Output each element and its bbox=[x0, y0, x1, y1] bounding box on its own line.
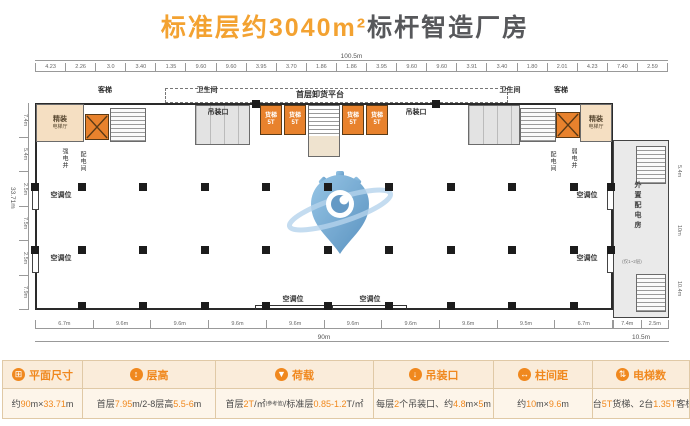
dim-segment: 9.60 bbox=[186, 63, 216, 71]
dim-left-segments: 7.4m5.4m2.5m7.5m2.5m7.9m bbox=[19, 103, 29, 310]
lobby-label2: 电梯厅 bbox=[52, 124, 67, 130]
column-marker bbox=[139, 302, 147, 310]
dim-bottom-annex-total: 10.5m bbox=[613, 333, 669, 342]
column-marker bbox=[31, 183, 39, 191]
title-highlight: 标准层约3040m² bbox=[161, 14, 367, 42]
ac-bay-outline bbox=[332, 305, 407, 310]
elevator-lobby-left: 精装 电梯厅 bbox=[36, 104, 84, 142]
dim-segment: 9.6m bbox=[382, 320, 440, 328]
passenger-elevator-label-left: 客梯 bbox=[90, 87, 120, 95]
value-text: m/2-8层高 bbox=[132, 397, 173, 410]
dim-segment: 2.26 bbox=[66, 63, 96, 71]
ac-label: 空调位 bbox=[274, 296, 312, 304]
staircase-left bbox=[110, 108, 146, 142]
annex-floor-note: (仅1~2层) bbox=[616, 259, 648, 265]
info-item-value: 每层2个吊装口、约4.8m×5m bbox=[374, 389, 493, 418]
value-highlight: 90 bbox=[21, 399, 31, 409]
value-highlight: 4.8 bbox=[453, 399, 466, 409]
freight-label: 货梯 bbox=[371, 113, 383, 120]
dim-top-total: 100.5m bbox=[35, 52, 668, 61]
column-marker bbox=[201, 246, 209, 254]
value-highlight: 1.35T bbox=[653, 399, 676, 409]
dim-segment: 2.59 bbox=[638, 63, 668, 71]
dim-segment: 9.6m bbox=[267, 320, 325, 328]
hoist-icon: ↓ bbox=[409, 368, 422, 381]
annex-staircase-top bbox=[636, 146, 666, 184]
dim-segment: 9.60 bbox=[217, 63, 247, 71]
freight-capacity: 5T bbox=[373, 120, 380, 127]
elevator-x-icon bbox=[86, 115, 108, 139]
info-item-header: ↕层高 bbox=[83, 361, 215, 389]
value-text: 客梯 bbox=[676, 397, 689, 410]
flyer-page: 标准层约3040m²标杆智造厂房 100.5m 4.232.263.03.401… bbox=[0, 0, 690, 426]
column-marker bbox=[385, 183, 393, 191]
dim-segment: 10.4m bbox=[672, 259, 682, 318]
column-marker bbox=[78, 246, 86, 254]
dim-segment: 1.86 bbox=[337, 63, 367, 71]
dim-segment: 1.86 bbox=[307, 63, 337, 71]
info-item-value: 首层7.95m/2-8层高5.5-6m bbox=[83, 389, 215, 418]
value-highlight: 10 bbox=[526, 399, 536, 409]
elevator-icon: ⇅ bbox=[616, 368, 629, 381]
distribution-room-label-right: 配电间 bbox=[548, 151, 555, 172]
restroom-right bbox=[468, 105, 520, 145]
value-text: T/㎡ bbox=[346, 397, 363, 410]
dim-segment: 3.70 bbox=[277, 63, 307, 71]
column-marker bbox=[139, 183, 147, 191]
dim-segment: 9.60 bbox=[427, 63, 457, 71]
info-item-2: ↕层高首层7.95m/2-8层高5.5-6m bbox=[83, 361, 216, 418]
hoist-opening-label-right: 吊装口 bbox=[391, 109, 441, 117]
value-text: (参考值) bbox=[266, 400, 284, 407]
value-highlight: 5.5-6 bbox=[173, 399, 194, 409]
column-marker bbox=[447, 183, 455, 191]
value-text: m bbox=[66, 399, 74, 409]
annex-label: 外置配电房 bbox=[622, 181, 642, 231]
dim-segment: 2.5m bbox=[642, 320, 670, 328]
column-marker bbox=[78, 302, 86, 310]
column-marker bbox=[607, 246, 615, 254]
value-text: m bbox=[561, 399, 569, 409]
freight-elevator-2: 货梯 5T bbox=[284, 105, 306, 135]
dim-segment: 1.80 bbox=[518, 63, 548, 71]
column-marker bbox=[324, 246, 332, 254]
column-marker bbox=[570, 246, 578, 254]
column-marker bbox=[201, 183, 209, 191]
dim-right-segments: 5.4m10m10.4m bbox=[672, 142, 682, 318]
info-item-header: ↔柱间距 bbox=[494, 361, 592, 389]
column-marker bbox=[324, 302, 332, 310]
freight-capacity: 5T bbox=[267, 120, 274, 127]
passenger-elevator-label-right: 客梯 bbox=[546, 87, 576, 95]
platform-label: 首层卸货平台 bbox=[270, 91, 370, 99]
info-item-label: 平面尺寸 bbox=[29, 367, 73, 383]
column-marker bbox=[139, 246, 147, 254]
dim-segment: 9.6m bbox=[325, 320, 383, 328]
dim-segment: 3.0 bbox=[96, 63, 126, 71]
freight-elevator-4: 货梯 5T bbox=[366, 105, 388, 135]
info-item-label: 荷载 bbox=[292, 367, 314, 383]
value-text: 4台 bbox=[593, 397, 602, 410]
info-item-header: ▼荷载 bbox=[216, 361, 373, 389]
column-marker bbox=[508, 302, 516, 310]
column-marker bbox=[570, 302, 578, 310]
info-item-label: 吊装口 bbox=[426, 367, 459, 383]
passenger-elevator-shaft-left bbox=[85, 114, 109, 140]
dim-segment: 3.91 bbox=[457, 63, 487, 71]
dim-segment: 7.5m bbox=[19, 207, 28, 242]
ac-label: 空调位 bbox=[570, 255, 604, 263]
info-item-5: ↔柱间距约10m×9.6m bbox=[494, 361, 593, 418]
info-item-1: ⊞平面尺寸约90m×33.71m bbox=[3, 361, 83, 418]
staircase-right bbox=[520, 108, 556, 142]
freight-label: 货梯 bbox=[289, 113, 301, 120]
dim-segment: 7.4m bbox=[19, 103, 28, 138]
column-marker bbox=[31, 246, 39, 254]
dim-bottom-main: 6.7m9.6m9.6m9.6m9.6m9.6m9.6m9.6m9.5m6.7m bbox=[35, 320, 613, 329]
elevator-x-icon bbox=[557, 113, 579, 137]
value-text: m× bbox=[536, 399, 549, 409]
info-item-value: 约10m×9.6m bbox=[494, 389, 592, 418]
hoist-opening-label-left: 吊装口 bbox=[193, 109, 243, 117]
ruler-icon: ⊞ bbox=[12, 368, 25, 381]
column-marker bbox=[385, 246, 393, 254]
value-highlight: 5T bbox=[602, 399, 613, 409]
freight-capacity: 5T bbox=[349, 120, 356, 127]
dim-segment: 9.6m bbox=[151, 320, 209, 328]
info-item-header: ⇅电梯数 bbox=[593, 361, 689, 389]
column-marker bbox=[262, 246, 270, 254]
value-text: m× bbox=[31, 399, 44, 409]
info-item-label: 柱间距 bbox=[535, 367, 568, 383]
column-marker bbox=[607, 183, 615, 191]
dim-segment: 9.6m bbox=[94, 320, 152, 328]
dim-segment: 2.5m bbox=[19, 241, 28, 276]
freight-elevator-1: 货梯 5T bbox=[260, 105, 282, 135]
dim-segment: 7.4m bbox=[613, 320, 642, 328]
dim-segment: 6.7m bbox=[35, 320, 94, 328]
info-item-4: ↓吊装口每层2个吊装口、约4.8m×5m bbox=[374, 361, 494, 418]
ac-label: 空调位 bbox=[351, 296, 389, 304]
value-text: m bbox=[194, 399, 202, 409]
value-highlight: 33.71 bbox=[43, 399, 66, 409]
column-marker bbox=[252, 100, 260, 108]
restroom-label-right: 卫生间 bbox=[490, 87, 530, 95]
info-item-label: 电梯数 bbox=[633, 367, 666, 383]
title-rest: 标杆智造厂房 bbox=[367, 14, 529, 42]
column-marker bbox=[508, 246, 516, 254]
column-marker bbox=[570, 183, 578, 191]
elevator-lobby-right: 精装 电梯厅 bbox=[580, 104, 612, 142]
column-marker bbox=[385, 302, 393, 310]
lobby-label2: 电梯厅 bbox=[588, 124, 603, 130]
external-distribution-room: 外置配电房 (仅1~2层) bbox=[613, 140, 669, 318]
value-text: 首层 bbox=[226, 397, 244, 410]
column-marker bbox=[508, 183, 516, 191]
info-item-label: 层高 bbox=[147, 367, 169, 383]
location-pin-logo bbox=[285, 158, 395, 268]
info-item-header: ↓吊装口 bbox=[374, 361, 493, 389]
dim-segment: 4.23 bbox=[35, 63, 66, 71]
column-marker bbox=[262, 183, 270, 191]
column-marker bbox=[432, 100, 440, 108]
value-highlight: 0.85-1.2 bbox=[313, 399, 346, 409]
dim-top-segments: 4.232.263.03.401.359.609.603.953.701.861… bbox=[35, 63, 668, 72]
strong-power-shaft-label: 强电井 bbox=[60, 148, 67, 169]
value-text: 货梯、2台 bbox=[612, 397, 653, 410]
dim-segment: 10m bbox=[672, 201, 682, 260]
dim-bottom-main-total: 90m bbox=[35, 333, 613, 342]
dim-segment: 3.95 bbox=[247, 63, 277, 71]
dim-segment: 2.5m bbox=[19, 172, 28, 207]
dim-left-total: 33.71m bbox=[9, 187, 16, 209]
staircase-center bbox=[308, 105, 340, 157]
dim-segment: 6.7m bbox=[555, 320, 613, 328]
info-item-value: 4台5T货梯、2台1.35T客梯 bbox=[593, 389, 689, 418]
column-marker bbox=[78, 183, 86, 191]
page-title: 标准层约3040m²标杆智造厂房 bbox=[0, 12, 690, 44]
lobby-label: 精装 bbox=[589, 116, 603, 124]
value-text: m bbox=[483, 399, 491, 409]
passenger-elevator-shaft-right bbox=[556, 112, 580, 138]
freight-elevator-3: 货梯 5T bbox=[342, 105, 364, 135]
value-highlight: 2T bbox=[244, 399, 255, 409]
value-highlight: 7.95 bbox=[115, 399, 133, 409]
column-marker bbox=[262, 302, 270, 310]
info-item-6: ⇅电梯数4台5T货梯、2台1.35T客梯 bbox=[593, 361, 689, 418]
dim-segment: 1.35 bbox=[156, 63, 186, 71]
lobby-label: 精装 bbox=[53, 116, 67, 124]
value-text: 个吊装口、约 bbox=[399, 397, 453, 410]
value-text: 首层 bbox=[97, 397, 115, 410]
distribution-room-label-left: 配电间 bbox=[78, 151, 85, 172]
ac-label: 空调位 bbox=[44, 192, 78, 200]
value-text: 约 bbox=[12, 397, 21, 410]
dim-segment: 9.60 bbox=[397, 63, 427, 71]
value-text: 约 bbox=[517, 397, 526, 410]
dim-segment: 2.01 bbox=[548, 63, 578, 71]
dim-segment: 5.4m bbox=[19, 138, 28, 173]
restroom-label-left: 卫生间 bbox=[187, 87, 227, 95]
value-text: 每层 bbox=[376, 397, 394, 410]
value-text: /㎡ bbox=[254, 397, 266, 410]
dim-segment: 5.4m bbox=[672, 142, 682, 201]
dim-segment: 9.6m bbox=[440, 320, 498, 328]
column-marker bbox=[324, 183, 332, 191]
value-text: m× bbox=[466, 399, 479, 409]
info-item-3: ▼荷载首层2T/㎡(参考值)/标准层0.85-1.2T/㎡ bbox=[216, 361, 374, 418]
column-marker bbox=[201, 302, 209, 310]
value-text: /标准层 bbox=[284, 397, 314, 410]
load-icon: ▼ bbox=[275, 368, 288, 381]
annex-staircase-bottom bbox=[636, 274, 666, 312]
freight-label: 货梯 bbox=[347, 113, 359, 120]
info-item-header: ⊞平面尺寸 bbox=[3, 361, 82, 389]
height-icon: ↕ bbox=[130, 368, 143, 381]
info-bar: ⊞平面尺寸约90m×33.71m↕层高首层7.95m/2-8层高5.5-6m▼荷… bbox=[2, 360, 690, 419]
dim-segment: 3.40 bbox=[487, 63, 517, 71]
column-marker bbox=[447, 302, 455, 310]
watermark-logo bbox=[285, 158, 395, 273]
dim-segment: 9.6m bbox=[209, 320, 267, 328]
weak-power-shaft-label: 弱电井 bbox=[569, 148, 576, 169]
dim-segment: 3.95 bbox=[367, 63, 397, 71]
ac-label: 空调位 bbox=[44, 255, 78, 263]
dim-segment: 3.40 bbox=[126, 63, 156, 71]
dim-segment: 4.23 bbox=[578, 63, 608, 71]
dim-bottom-annex: 7.4m2.5m bbox=[613, 320, 669, 329]
column-marker bbox=[447, 246, 455, 254]
value-highlight: 9.6 bbox=[549, 399, 562, 409]
spacing-icon: ↔ bbox=[518, 368, 531, 381]
dim-segment: 7.9m bbox=[19, 276, 28, 311]
freight-capacity: 5T bbox=[291, 120, 298, 127]
info-item-value: 约90m×33.71m bbox=[3, 389, 82, 418]
floor-plan: 100.5m 4.232.263.03.401.359.609.603.953.… bbox=[8, 52, 682, 354]
info-item-value: 首层2T/㎡(参考值)/标准层0.85-1.2T/㎡ bbox=[216, 389, 373, 418]
dim-segment: 9.5m bbox=[498, 320, 556, 328]
freight-label: 货梯 bbox=[265, 113, 277, 120]
dim-segment: 7.40 bbox=[608, 63, 638, 71]
ac-label: 空调位 bbox=[570, 192, 604, 200]
